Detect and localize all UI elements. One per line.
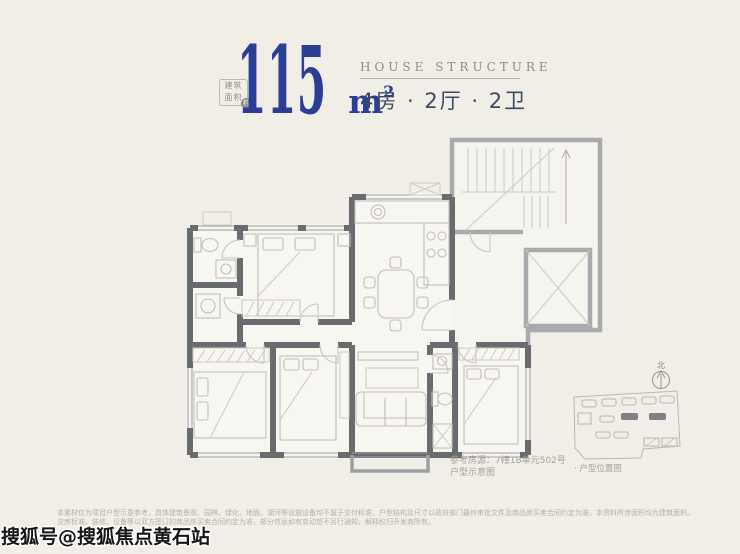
reference-caption-line1: 参考房源：7幢1B单元502号 (450, 455, 566, 467)
compass-north-label: 北 (657, 361, 665, 370)
floorplan-svg: 北 (0, 0, 740, 554)
highlighted-buildings (621, 413, 666, 420)
reference-caption-line2: 户型示意图 (450, 467, 566, 479)
disclaimer-line1: 本素材仅为项目户型示意参考，具体建筑景观、园林、绿化、地面、湖河等设施设备均不属… (57, 509, 697, 518)
room-floor (190, 140, 600, 455)
reference-caption: 参考房源：7幢1B单元502号 户型示意图 (450, 455, 566, 479)
watermark: 搜狐号@搜狐焦点黄石站 (1, 522, 210, 549)
minimap-label: · 户型位置图 (574, 462, 622, 474)
floorplan-poster: 建筑 面积 约 115m2 HOUSE STRUCTURE 4房 · 2厅 · … (0, 0, 740, 554)
sitemap-minimap (574, 391, 680, 459)
ac-platform (203, 212, 231, 225)
compass-icon: 北 (653, 361, 670, 389)
